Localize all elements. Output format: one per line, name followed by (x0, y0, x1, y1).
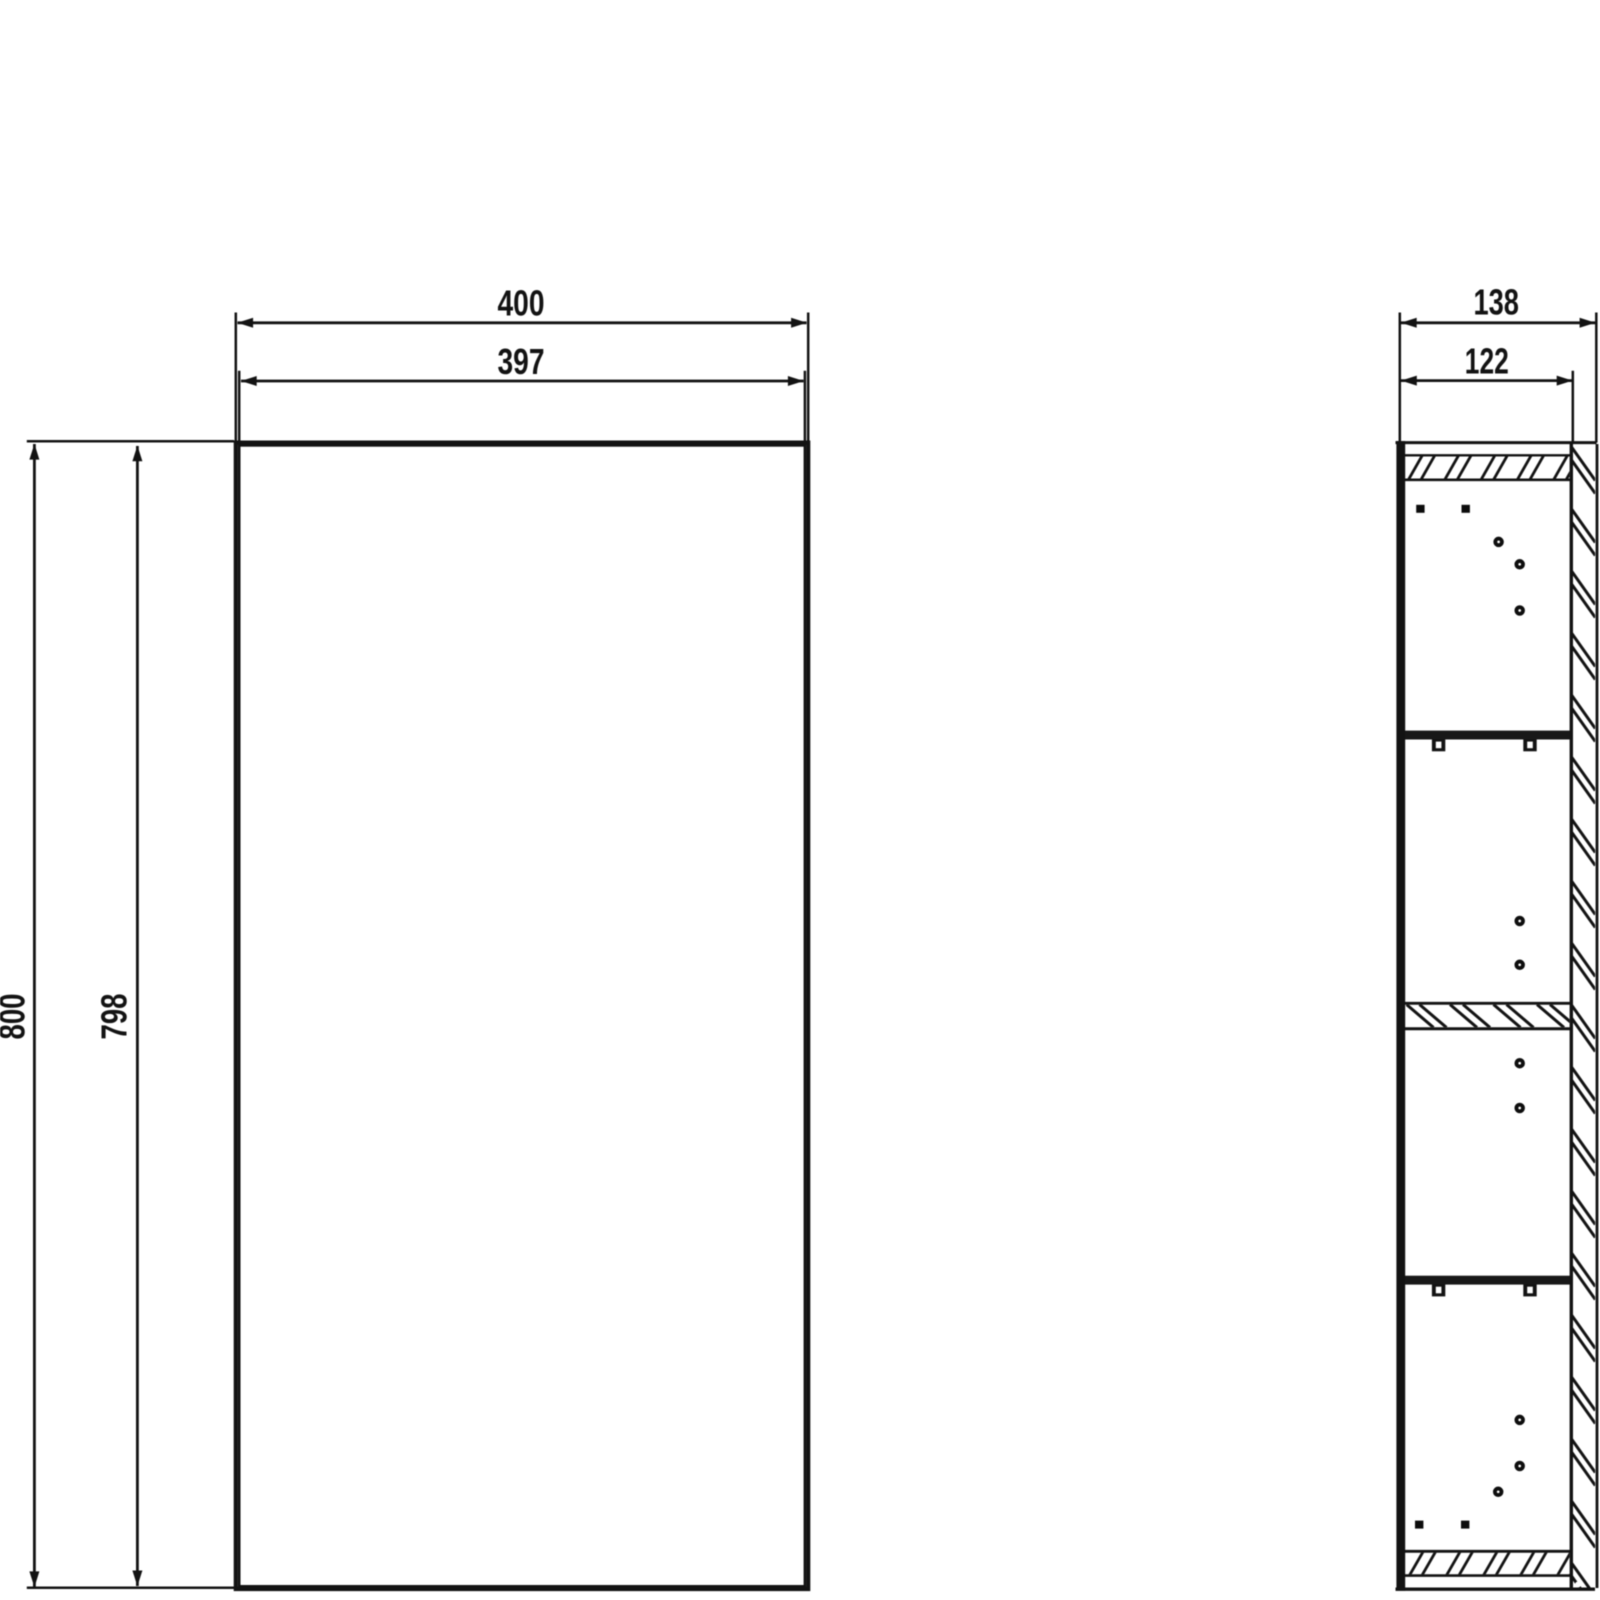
svg-text:138: 138 (1473, 282, 1519, 323)
svg-text:798: 798 (93, 994, 134, 1040)
svg-text:397: 397 (498, 341, 545, 382)
svg-text:800: 800 (0, 994, 33, 1040)
svg-text:400: 400 (498, 282, 545, 323)
svg-text:122: 122 (1465, 341, 1509, 382)
